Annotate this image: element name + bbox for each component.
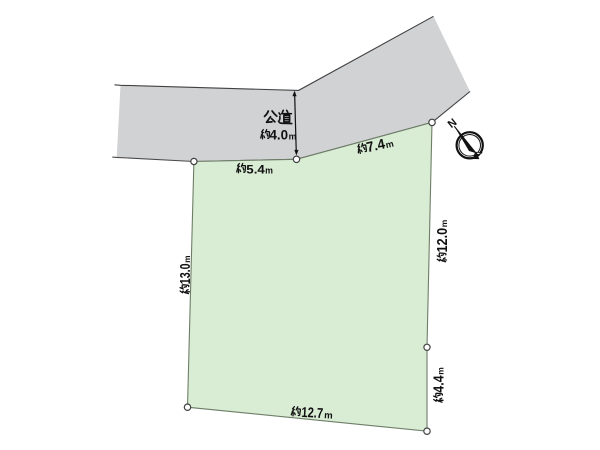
svg-text:5.4: 5.4	[246, 162, 265, 176]
svg-text:m: m	[324, 410, 333, 421]
svg-text:4.0: 4.0	[270, 127, 289, 143]
svg-text:12.0: 12.0	[435, 228, 451, 253]
svg-text:4.4: 4.4	[432, 375, 448, 392]
svg-text:m: m	[289, 131, 297, 141]
svg-text:13.0: 13.0	[178, 263, 194, 284]
svg-text:m: m	[182, 255, 192, 262]
svg-text:m: m	[436, 367, 446, 375]
svg-text:12.7: 12.7	[301, 405, 324, 422]
svg-text:m: m	[265, 165, 273, 175]
svg-text:m: m	[439, 219, 449, 227]
